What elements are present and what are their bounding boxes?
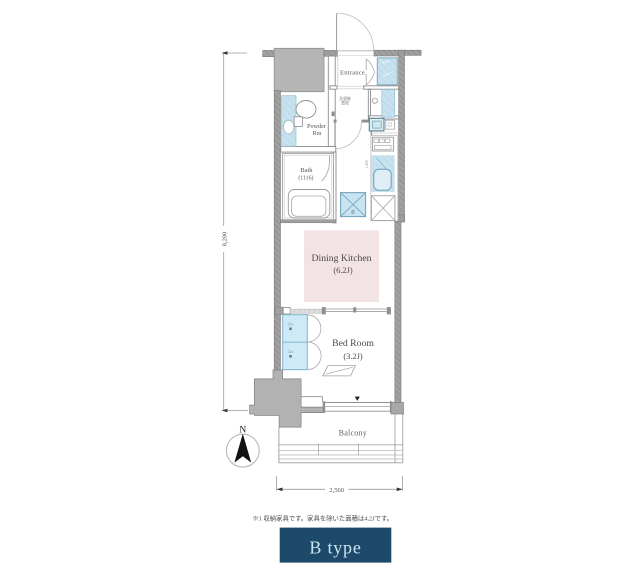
svg-text:(3.2J): (3.2J): [343, 352, 363, 361]
svg-text:※1 収納家具です。家具を除いた面積は4.2Jです。: ※1 収納家具です。家具を除いた面積は4.2Jです。: [252, 514, 393, 523]
svg-text:Bed Room: Bed Room: [332, 338, 374, 349]
svg-text:1,400: 1,400: [365, 160, 370, 169]
svg-text:N: N: [239, 426, 246, 436]
svg-text:Clo: Clo: [288, 322, 294, 327]
svg-text:Clo: Clo: [288, 349, 294, 354]
svg-text:Bath: Bath: [300, 167, 313, 174]
svg-text:洗濯機: 洗濯機: [339, 96, 351, 101]
svg-text:Balcony: Balcony: [339, 428, 368, 437]
svg-text:(6.2J): (6.2J): [333, 266, 353, 275]
svg-text:8,200: 8,200: [221, 232, 228, 246]
svg-text:(1116): (1116): [298, 174, 313, 181]
svg-text:B type: B type: [309, 538, 361, 558]
svg-text:Dining Kitchen: Dining Kitchen: [312, 253, 372, 264]
svg-text:置場: 置場: [341, 100, 349, 105]
svg-text:Entrance: Entrance: [340, 70, 365, 77]
svg-text:2,560: 2,560: [329, 487, 345, 494]
svg-text:Rm: Rm: [313, 130, 322, 137]
